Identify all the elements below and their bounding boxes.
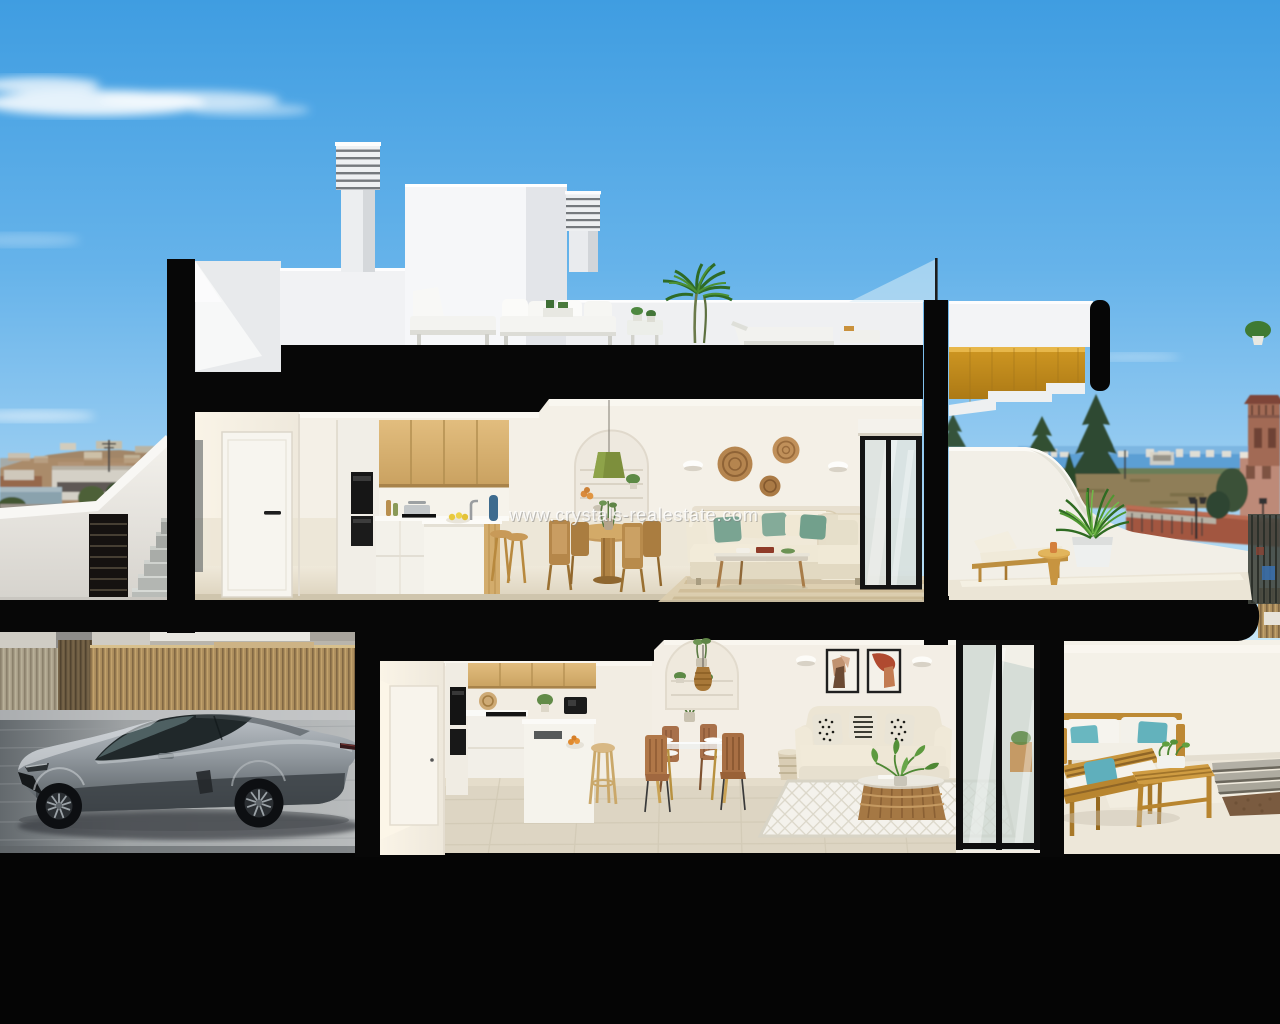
svg-text:www.crystals-realestate.com: www.crystals-realestate.com	[508, 505, 759, 525]
